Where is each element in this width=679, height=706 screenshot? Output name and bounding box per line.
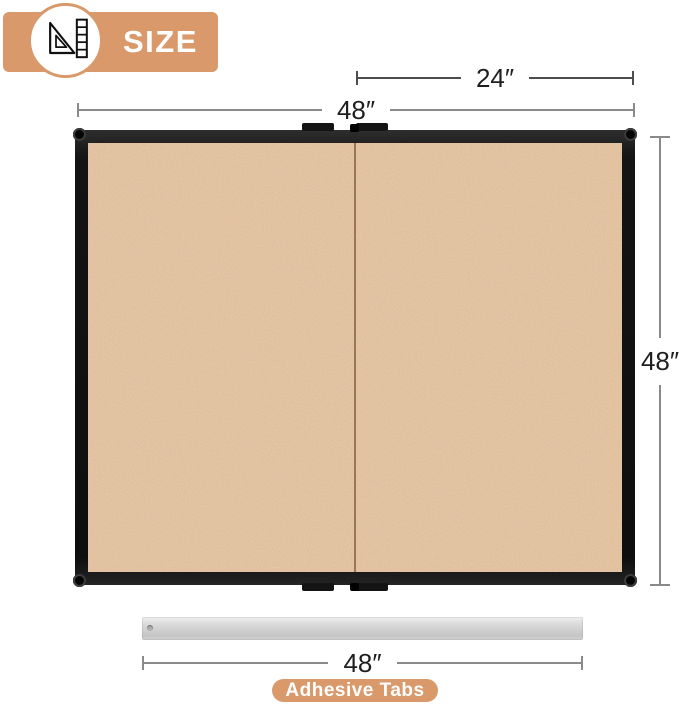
hinge-tab-top-left bbox=[302, 123, 334, 131]
dim-line bbox=[529, 77, 632, 79]
dim-label-half-width: 24″ bbox=[461, 63, 529, 93]
set-square-ruler-icon bbox=[41, 13, 91, 68]
dimension-height: 48″ bbox=[637, 136, 679, 586]
dim-line bbox=[358, 77, 461, 79]
dim-tick-right bbox=[632, 71, 634, 85]
cork-board bbox=[75, 130, 635, 585]
dim-line bbox=[659, 138, 661, 338]
dimension-full-width: 48″ bbox=[77, 95, 635, 125]
dimension-half-width: 24″ bbox=[356, 63, 634, 93]
hinge-knob-bottom bbox=[350, 583, 359, 591]
hinge-tab-bottom-left bbox=[302, 583, 334, 591]
adhesive-tab-bar bbox=[142, 617, 583, 640]
cork-surface bbox=[88, 143, 622, 572]
dim-tick-bottom bbox=[650, 584, 670, 586]
dim-tick-right bbox=[581, 656, 583, 670]
dim-line bbox=[659, 385, 661, 585]
corner-cap-top-right bbox=[624, 128, 637, 141]
dim-line bbox=[390, 109, 633, 111]
corner-cap-top-left bbox=[73, 128, 86, 141]
hinge-tab-bottom-right bbox=[356, 583, 388, 591]
dim-tick-right bbox=[633, 103, 635, 117]
dim-label-bar-width: 48″ bbox=[328, 648, 396, 678]
bar-hole bbox=[147, 625, 153, 631]
dim-line bbox=[79, 109, 322, 111]
dim-label-height: 48″ bbox=[641, 338, 679, 385]
fold-seam bbox=[354, 143, 356, 572]
hinge-knob-top bbox=[350, 124, 359, 132]
hinge-tab-top-right bbox=[356, 123, 388, 131]
dim-line bbox=[397, 662, 581, 664]
product-size-infographic: SIZE 24″ 48″ bbox=[0, 0, 679, 706]
page-title: SIZE bbox=[123, 12, 198, 72]
adhesive-tabs-label: Adhesive Tabs bbox=[285, 680, 424, 702]
dim-label-full-width: 48″ bbox=[322, 95, 390, 125]
adhesive-tabs-pill: Adhesive Tabs bbox=[272, 679, 438, 702]
corner-cap-bottom-right bbox=[624, 574, 637, 587]
dimension-bar-width: 48″ bbox=[142, 648, 583, 678]
dim-line bbox=[144, 662, 328, 664]
corner-cap-bottom-left bbox=[73, 574, 86, 587]
header-badge bbox=[28, 3, 103, 78]
